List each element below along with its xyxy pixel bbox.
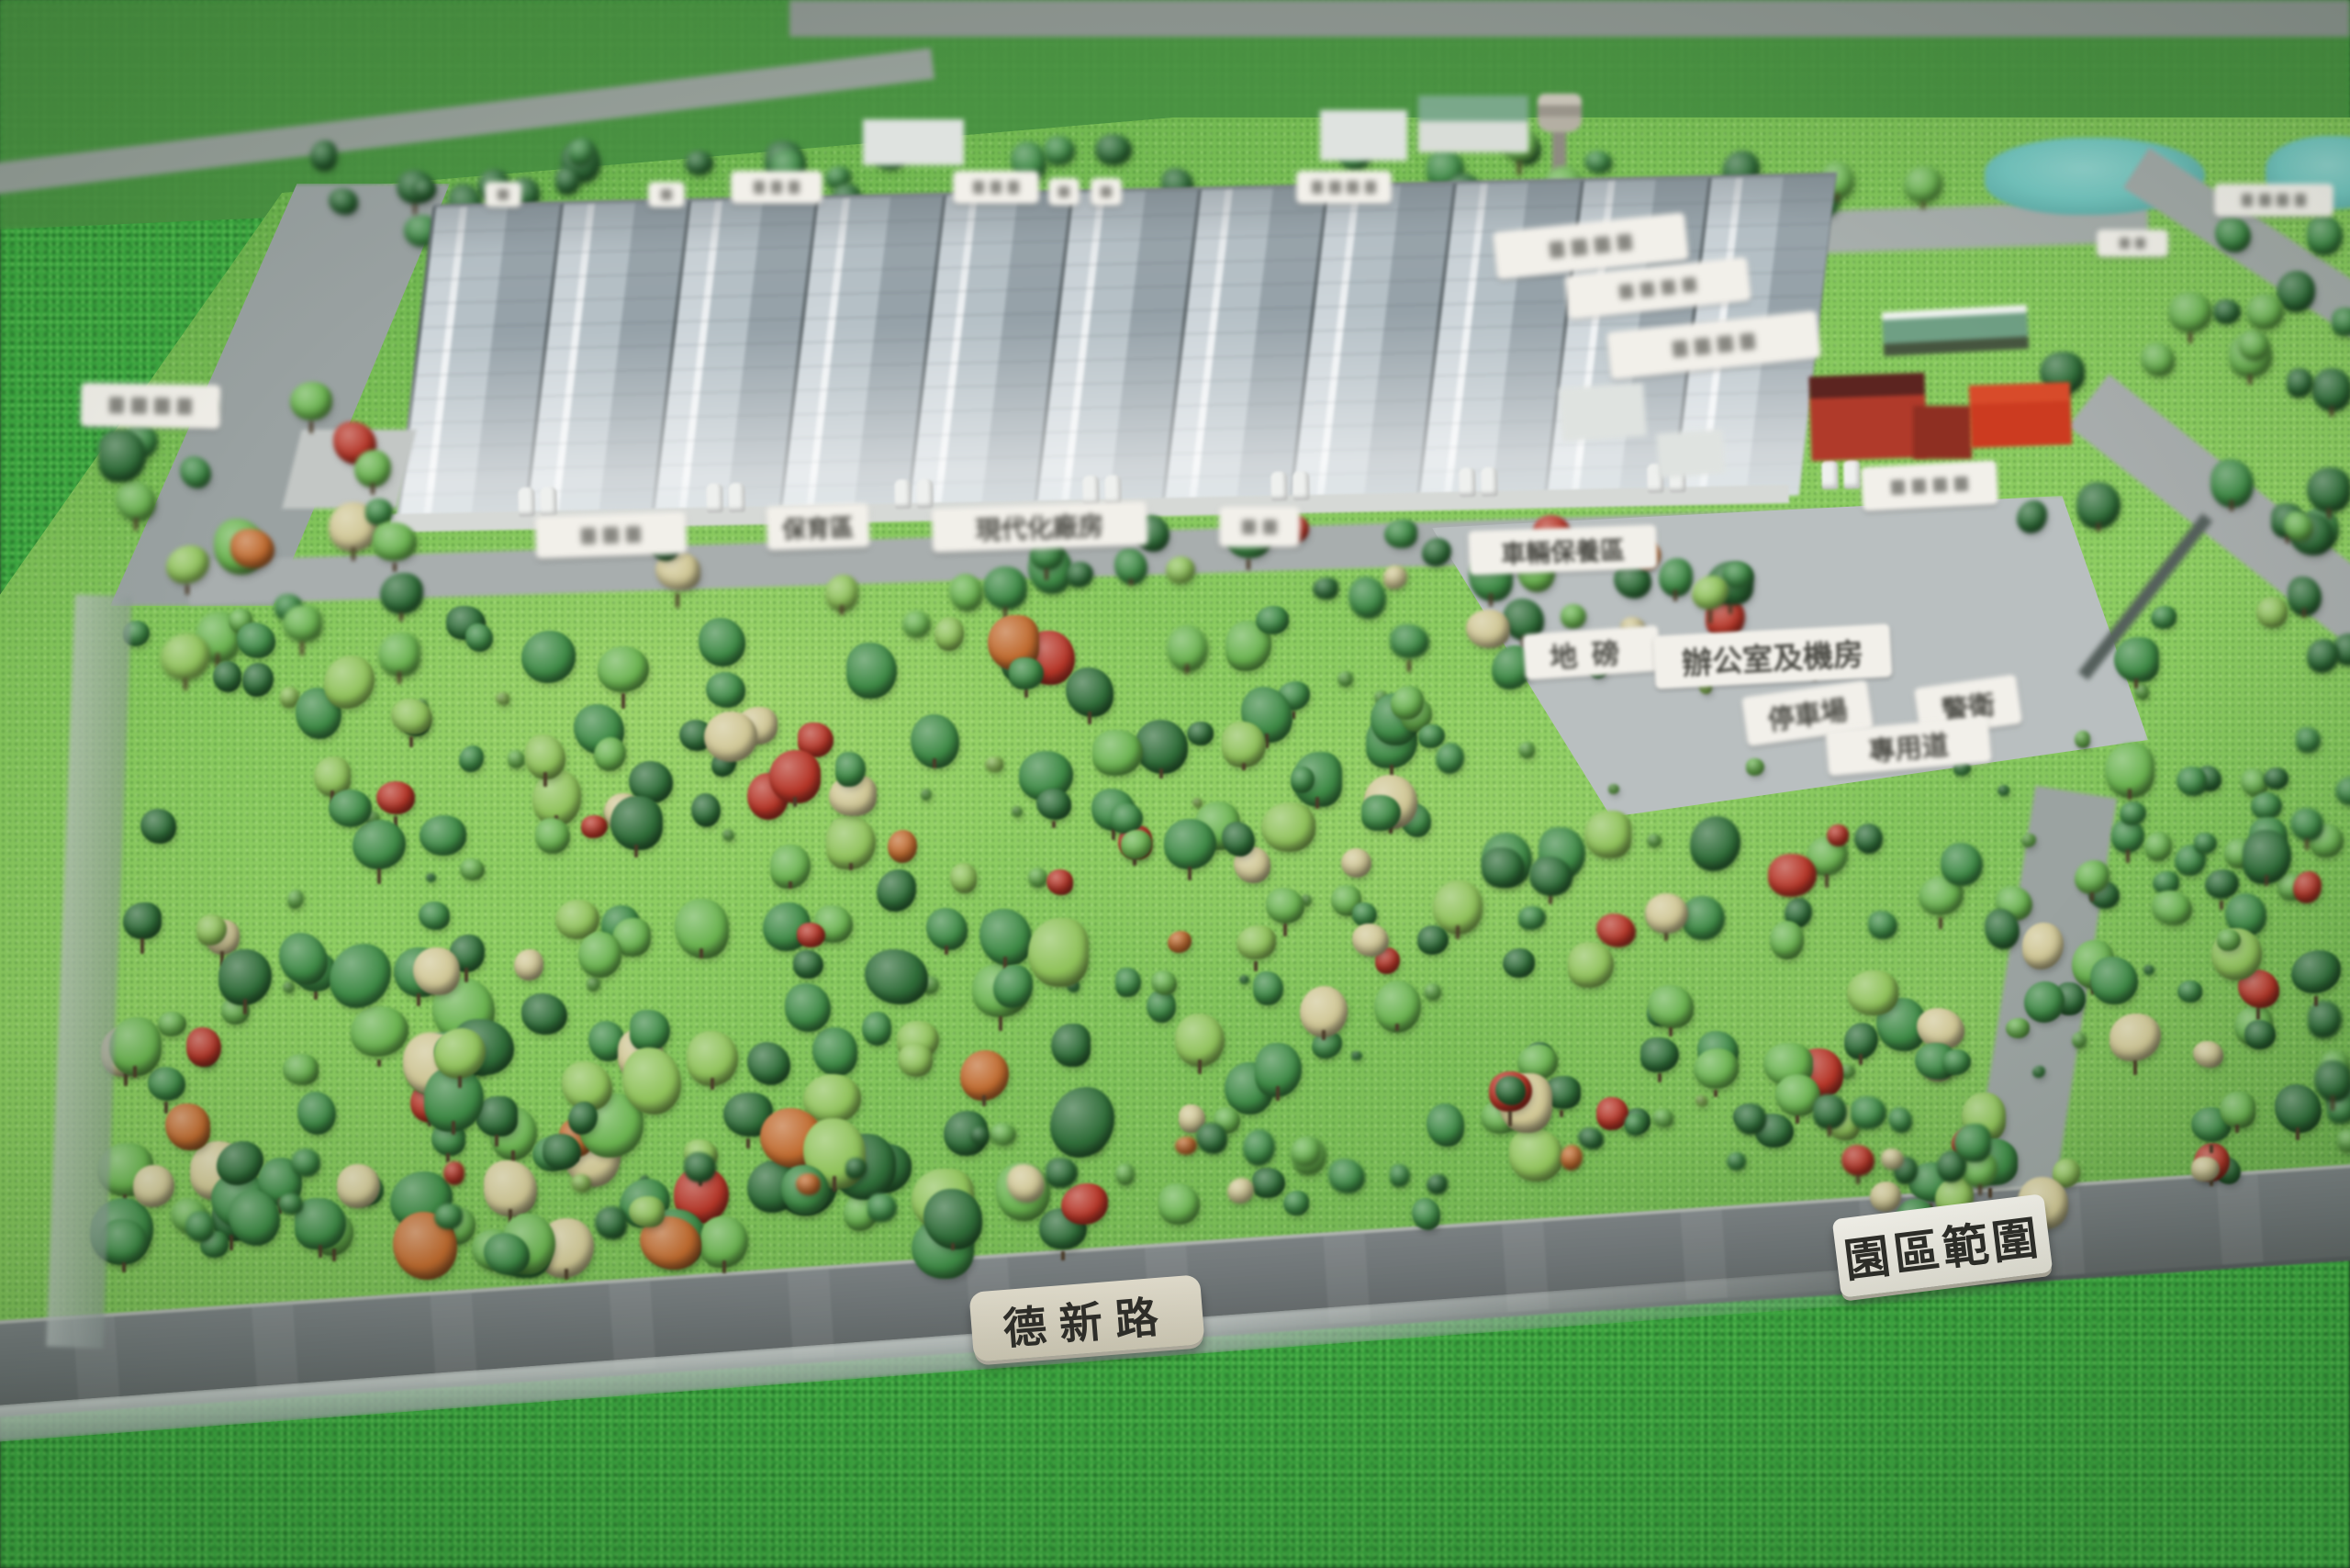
model-tree bbox=[434, 1204, 463, 1229]
tree-trunk bbox=[1859, 1054, 1863, 1065]
illegible-character bbox=[1954, 476, 1969, 492]
far-building-green-roof bbox=[1418, 95, 1528, 152]
tree-trunk bbox=[565, 1269, 568, 1280]
tree-trunk bbox=[464, 968, 468, 982]
model-tree bbox=[543, 1134, 581, 1170]
model-tree bbox=[1568, 942, 1614, 988]
model-tree bbox=[1046, 1158, 1078, 1188]
illegible-character bbox=[1347, 181, 1358, 193]
storage-tank bbox=[1843, 459, 1861, 488]
illegible-character bbox=[131, 398, 146, 413]
tree-trunk bbox=[2265, 875, 2268, 886]
model-tree bbox=[1351, 1051, 1362, 1060]
model-tree bbox=[706, 672, 745, 708]
illegible-character bbox=[2135, 238, 2145, 249]
tree-trunk bbox=[1395, 1024, 1399, 1031]
tree-trunk bbox=[1549, 896, 1552, 904]
model-tree bbox=[109, 1017, 162, 1076]
tree-trunk bbox=[2090, 892, 2094, 902]
model-tree bbox=[2264, 767, 2288, 790]
model-tree bbox=[1253, 971, 1283, 1005]
model-tree bbox=[2308, 1001, 2342, 1038]
label-tag-illegible bbox=[953, 171, 1039, 204]
tree-trunk bbox=[1088, 711, 1091, 724]
illegible-character bbox=[154, 398, 169, 414]
model-tree bbox=[310, 140, 337, 171]
illegible-character bbox=[1312, 181, 1323, 193]
model-tree bbox=[352, 820, 406, 869]
model-tree bbox=[2177, 980, 2202, 1002]
model-tree bbox=[2177, 767, 2207, 796]
model-tree bbox=[785, 983, 831, 1032]
tree-trunk bbox=[140, 938, 144, 954]
storage-tank bbox=[916, 479, 934, 509]
tree-trunk bbox=[1988, 1188, 1992, 1198]
tree-trunk bbox=[634, 845, 638, 857]
model-tree bbox=[1192, 798, 1203, 808]
model-tree bbox=[1361, 795, 1401, 831]
model-tree bbox=[283, 1054, 319, 1085]
tree-trunk bbox=[2134, 678, 2138, 689]
model-tree bbox=[2143, 965, 2154, 975]
model-tree bbox=[1164, 819, 1216, 869]
illegible-character bbox=[789, 181, 800, 193]
tree-trunk bbox=[1024, 689, 1028, 698]
model-tree bbox=[1390, 1164, 1410, 1187]
model-tree bbox=[1768, 854, 1817, 897]
tree-trunk bbox=[2133, 1060, 2137, 1075]
illegible-character bbox=[754, 181, 765, 193]
model-tree bbox=[1341, 848, 1371, 878]
tree-trunk bbox=[849, 863, 853, 870]
model-tree bbox=[1095, 134, 1132, 165]
model-tree bbox=[812, 1027, 857, 1076]
tree-trunk bbox=[352, 547, 355, 561]
tree-trunk bbox=[1198, 1059, 1202, 1074]
model-tree bbox=[213, 661, 241, 692]
label-tag-illegible bbox=[81, 383, 221, 430]
model-tree bbox=[1647, 834, 1662, 847]
illegible-character bbox=[1263, 520, 1277, 534]
model-tree bbox=[1012, 806, 1023, 817]
red-building-bright bbox=[1969, 382, 2072, 448]
model-tree bbox=[2090, 957, 2138, 1004]
tree-trunk bbox=[2128, 789, 2132, 800]
tree-trunk bbox=[377, 1059, 381, 1067]
far-road-top bbox=[789, 0, 2350, 37]
storage-tank bbox=[706, 483, 723, 512]
label-tag-illegible bbox=[1048, 178, 1080, 206]
model-tree bbox=[2238, 330, 2269, 361]
model-tree bbox=[2194, 833, 2217, 854]
illegible-character bbox=[1891, 480, 1906, 496]
far-building bbox=[863, 119, 964, 165]
model-tree bbox=[949, 574, 983, 611]
model-tree bbox=[1352, 924, 1389, 957]
model-tree bbox=[2288, 577, 2322, 616]
label-tag-illegible bbox=[731, 171, 822, 204]
model-tree bbox=[2311, 368, 2350, 411]
model-tree bbox=[2141, 342, 2175, 376]
illegible-character bbox=[580, 528, 596, 544]
model-tree bbox=[1158, 1183, 1200, 1225]
model-tree bbox=[687, 1031, 738, 1086]
model-tree bbox=[2287, 368, 2313, 398]
tree-trunk bbox=[1517, 161, 1521, 175]
model-tree bbox=[2151, 606, 2177, 629]
tree-trunk bbox=[1315, 797, 1319, 809]
illegible-character bbox=[1618, 284, 1633, 299]
storage-tank bbox=[1104, 475, 1122, 504]
model-tree bbox=[1645, 893, 1688, 934]
storage-tank bbox=[894, 479, 912, 509]
apron-building bbox=[1656, 430, 1725, 478]
model-tree bbox=[291, 1148, 320, 1177]
illegible-character bbox=[1058, 186, 1069, 197]
model-tree bbox=[2144, 832, 2172, 861]
tree-trunk bbox=[2248, 375, 2252, 385]
model-tree bbox=[1222, 722, 1266, 767]
model-tree bbox=[1417, 925, 1449, 955]
model-tree bbox=[2307, 467, 2350, 512]
model-tree bbox=[101, 1219, 148, 1264]
model-tree bbox=[1659, 558, 1693, 597]
model-tree bbox=[1283, 1191, 1309, 1215]
model-tree bbox=[2256, 597, 2288, 628]
model-tree bbox=[1044, 136, 1075, 165]
illegible-character bbox=[1008, 181, 1019, 193]
tree-trunk bbox=[2330, 406, 2333, 417]
tree-trunk bbox=[1921, 202, 1925, 209]
tree-trunk bbox=[1322, 1030, 1326, 1040]
model-tree bbox=[2220, 1092, 2255, 1128]
model-tree bbox=[1854, 823, 1883, 854]
tree-trunk bbox=[1939, 917, 1942, 929]
storage-tank bbox=[1481, 467, 1498, 497]
model-tree bbox=[413, 947, 460, 995]
water-tower bbox=[1538, 94, 1582, 132]
model-tree bbox=[1695, 1095, 1707, 1106]
model-tree bbox=[2210, 459, 2254, 508]
label-vehicle-maintenance: 車輛保養區 bbox=[1468, 524, 1658, 575]
model-tree bbox=[2191, 1157, 2220, 1182]
illegible-character bbox=[1242, 520, 1256, 534]
tree-trunk bbox=[833, 1176, 836, 1192]
tree-trunk bbox=[1729, 604, 1732, 614]
illegible-character bbox=[1912, 478, 1927, 494]
model-tree bbox=[2217, 929, 2241, 951]
model-tree bbox=[1888, 1107, 1912, 1133]
model-tree bbox=[1813, 1094, 1847, 1129]
model-tree bbox=[862, 1012, 891, 1046]
tree-trunk bbox=[2314, 996, 2318, 1006]
model-tree bbox=[278, 1193, 303, 1215]
illegible-character bbox=[603, 527, 619, 543]
model-tree bbox=[898, 1043, 933, 1077]
model-tree bbox=[699, 618, 745, 666]
model-tree bbox=[521, 631, 576, 683]
tree-trunk bbox=[951, 1243, 955, 1250]
model-tree bbox=[691, 793, 721, 827]
tree-trunk bbox=[2327, 508, 2331, 520]
model-tree bbox=[98, 430, 146, 482]
tree-trunk bbox=[1978, 1184, 1982, 1195]
tree-trunk bbox=[1508, 1111, 1512, 1126]
tree-trunk bbox=[1825, 874, 1829, 888]
tree-trunk bbox=[711, 1078, 714, 1090]
model-tree bbox=[2314, 1060, 2350, 1102]
model-tree bbox=[825, 575, 858, 611]
model-tree bbox=[1196, 1123, 1227, 1154]
model-tree bbox=[1313, 577, 1338, 599]
model-tree bbox=[1424, 983, 1441, 1001]
red-building-annex bbox=[1913, 406, 1972, 459]
illegible-character bbox=[1933, 477, 1948, 493]
model-tree bbox=[1640, 1037, 1679, 1072]
model-tree bbox=[376, 781, 415, 814]
tree-trunk bbox=[840, 605, 844, 615]
label-modern-factory: 現代化廠房 bbox=[931, 501, 1148, 553]
model-tree bbox=[380, 573, 423, 614]
model-tree bbox=[578, 932, 621, 978]
model-tree bbox=[1997, 785, 2009, 796]
illegible-character bbox=[1594, 236, 1610, 253]
model-tree bbox=[2168, 292, 2212, 332]
model-tree bbox=[1151, 970, 1177, 995]
label-tag-illegible bbox=[1091, 178, 1122, 206]
tree-trunk bbox=[1560, 1110, 1563, 1117]
tree-trunk bbox=[134, 518, 138, 531]
model-tree bbox=[185, 1211, 215, 1242]
model-tree bbox=[2075, 731, 2090, 748]
model-tree bbox=[1291, 1137, 1321, 1167]
model-tree bbox=[2006, 1018, 2030, 1038]
tree-trunk bbox=[1188, 867, 1192, 880]
model-tree bbox=[926, 908, 968, 950]
tree-trunk bbox=[1714, 1090, 1718, 1097]
model-tree bbox=[1608, 784, 1619, 794]
model-tree bbox=[1941, 843, 1983, 886]
illegible-character bbox=[1639, 282, 1654, 297]
model-tree bbox=[297, 1092, 336, 1135]
tree-trunk bbox=[1276, 1086, 1280, 1101]
illegible-character bbox=[498, 189, 508, 200]
tree-trunk bbox=[377, 868, 381, 884]
model-tree bbox=[1239, 975, 1249, 984]
tree-trunk bbox=[319, 1245, 322, 1258]
tree-trunk bbox=[122, 1262, 126, 1272]
model-tree bbox=[237, 622, 275, 658]
illegible-character bbox=[108, 398, 123, 413]
model-tree bbox=[2152, 890, 2192, 925]
tree-trunk bbox=[300, 642, 304, 655]
illegible-character bbox=[2242, 194, 2253, 206]
model-tree bbox=[2213, 299, 2241, 324]
model-tree bbox=[1584, 811, 1631, 858]
tree-trunk bbox=[397, 671, 401, 684]
tree-trunk bbox=[1664, 933, 1668, 941]
tree-trunk bbox=[409, 736, 413, 747]
model-tree bbox=[1584, 151, 1612, 174]
model-tree bbox=[867, 1193, 897, 1222]
model-tree bbox=[460, 858, 485, 880]
tree-trunk bbox=[2220, 901, 2223, 910]
model-tree bbox=[1746, 758, 1764, 776]
model-tree bbox=[555, 167, 580, 195]
model-tree bbox=[1115, 1163, 1135, 1185]
model-tree bbox=[630, 1010, 670, 1051]
model-tree bbox=[1851, 1096, 1886, 1129]
tree-trunk bbox=[746, 1138, 750, 1148]
tree-trunk bbox=[413, 204, 417, 215]
illegible-character bbox=[1549, 241, 1565, 259]
tree-trunk bbox=[999, 1016, 1002, 1031]
model-tree bbox=[140, 809, 176, 844]
tree-trunk bbox=[2302, 608, 2306, 618]
model-tree bbox=[1482, 847, 1525, 888]
model-tree bbox=[1870, 1182, 1901, 1212]
model-tree bbox=[1561, 604, 1586, 629]
model-tree bbox=[1868, 911, 1897, 939]
tree-trunk bbox=[1185, 664, 1189, 674]
tree-trunk bbox=[371, 483, 375, 495]
tree-trunk bbox=[458, 1076, 462, 1088]
tree-trunk bbox=[133, 1066, 137, 1078]
model-tree bbox=[1187, 722, 1214, 745]
far-building bbox=[1320, 110, 1407, 161]
scale-model-photo: 保育區 現代化廠房 車輛保養區 地磅 辦公室及機房 停車場 警衛 專用道 德新路… bbox=[0, 0, 2350, 1568]
illegible-character bbox=[626, 526, 642, 543]
model-tree bbox=[2290, 808, 2323, 841]
model-tree bbox=[835, 752, 866, 787]
illegible-character bbox=[1661, 279, 1675, 295]
label-tag-illegible bbox=[2097, 230, 2168, 257]
label-tag-illegible bbox=[648, 182, 685, 207]
tree-trunk bbox=[452, 1121, 455, 1135]
tree-trunk bbox=[722, 1260, 726, 1273]
model-tree bbox=[1427, 1174, 1448, 1194]
tree-trunk bbox=[1708, 610, 1712, 623]
tree-trunk bbox=[446, 1153, 450, 1162]
model-tree bbox=[329, 188, 358, 215]
model-tree bbox=[290, 382, 332, 420]
storage-tank bbox=[728, 483, 745, 512]
illegible-character bbox=[1572, 239, 1588, 256]
tree-trunk bbox=[2296, 1127, 2300, 1140]
model-tree bbox=[595, 1206, 627, 1239]
model-tree bbox=[1051, 1024, 1091, 1067]
model-tree bbox=[2024, 981, 2065, 1023]
model-tree bbox=[123, 902, 162, 939]
model-tree bbox=[983, 566, 1027, 610]
model-tree bbox=[1046, 869, 1073, 895]
tree-trunk bbox=[621, 693, 625, 709]
tree-trunk bbox=[1856, 1175, 1860, 1184]
illegible-character bbox=[771, 181, 782, 193]
model-tree bbox=[704, 711, 757, 762]
label-conservation-area: 保育區 bbox=[766, 503, 870, 551]
tree-trunk bbox=[495, 1135, 498, 1147]
tree-trunk bbox=[1407, 660, 1411, 672]
tree-trunk bbox=[676, 593, 679, 608]
model-tree bbox=[684, 1152, 716, 1182]
label-tag-illegible bbox=[2214, 184, 2333, 217]
tree-trunk bbox=[1658, 1073, 1662, 1082]
tree-trunk bbox=[1045, 568, 1048, 580]
tree-trunk bbox=[2256, 1008, 2260, 1020]
model-tree bbox=[443, 1161, 464, 1185]
illegible-character bbox=[2259, 194, 2270, 206]
model-tree bbox=[283, 605, 322, 642]
tree-trunk bbox=[2188, 332, 2192, 343]
model-tree bbox=[1509, 1128, 1563, 1182]
model-tree bbox=[1648, 985, 1694, 1028]
label-weighbridge: 地磅 bbox=[1522, 625, 1661, 680]
model-tree bbox=[675, 899, 729, 958]
illegible-character bbox=[661, 189, 671, 200]
tree-trunk bbox=[2331, 1095, 2334, 1111]
model-tree bbox=[888, 830, 917, 863]
label-tag-illegible bbox=[534, 511, 688, 559]
model-tree bbox=[186, 1027, 221, 1067]
label-tag-illegible bbox=[485, 182, 521, 207]
model-tree bbox=[2296, 727, 2321, 753]
tree-trunk bbox=[309, 421, 313, 433]
model-tree bbox=[1175, 1014, 1225, 1067]
model-tree bbox=[571, 1174, 591, 1193]
illegible-character bbox=[973, 181, 984, 193]
model-tree bbox=[796, 1173, 821, 1195]
model-tree bbox=[846, 643, 897, 699]
tree-trunk bbox=[945, 946, 948, 955]
model-tree bbox=[1518, 742, 1535, 758]
model-tree bbox=[535, 818, 570, 854]
tree-trunk bbox=[1456, 925, 1460, 939]
tree-trunk bbox=[1129, 578, 1133, 586]
model-tree bbox=[1841, 1145, 1874, 1176]
model-tree bbox=[2076, 482, 2121, 529]
tree-trunk bbox=[793, 797, 797, 807]
model-tree bbox=[1167, 625, 1208, 672]
model-tree bbox=[420, 815, 466, 856]
model-tree bbox=[685, 151, 713, 175]
illegible-character bbox=[1695, 338, 1711, 355]
model-tree bbox=[378, 633, 420, 677]
model-tree bbox=[373, 522, 417, 561]
model-tree bbox=[1114, 548, 1147, 585]
model-tree bbox=[229, 1190, 280, 1246]
model-tree bbox=[1503, 948, 1535, 978]
tree-trunk bbox=[243, 999, 247, 1014]
model-tree bbox=[1390, 624, 1429, 658]
label-tag-illegible bbox=[1861, 460, 1998, 511]
model-tree bbox=[1652, 1109, 1673, 1127]
model-tree bbox=[1391, 686, 1424, 720]
model-tree bbox=[1727, 1152, 1746, 1170]
model-tree bbox=[1881, 1148, 1904, 1170]
storage-tank bbox=[1821, 460, 1839, 489]
illegible-character bbox=[1617, 234, 1633, 252]
model-tree bbox=[1529, 857, 1572, 896]
green-roof-building bbox=[1882, 305, 2029, 356]
model-tree bbox=[329, 790, 372, 827]
tree-trunk bbox=[332, 1249, 336, 1261]
tree-trunk bbox=[982, 1095, 986, 1106]
tree-trunk bbox=[164, 1102, 168, 1114]
model-tree bbox=[2244, 1020, 2276, 1049]
model-tree bbox=[2105, 743, 2154, 798]
model-tree bbox=[950, 863, 977, 893]
